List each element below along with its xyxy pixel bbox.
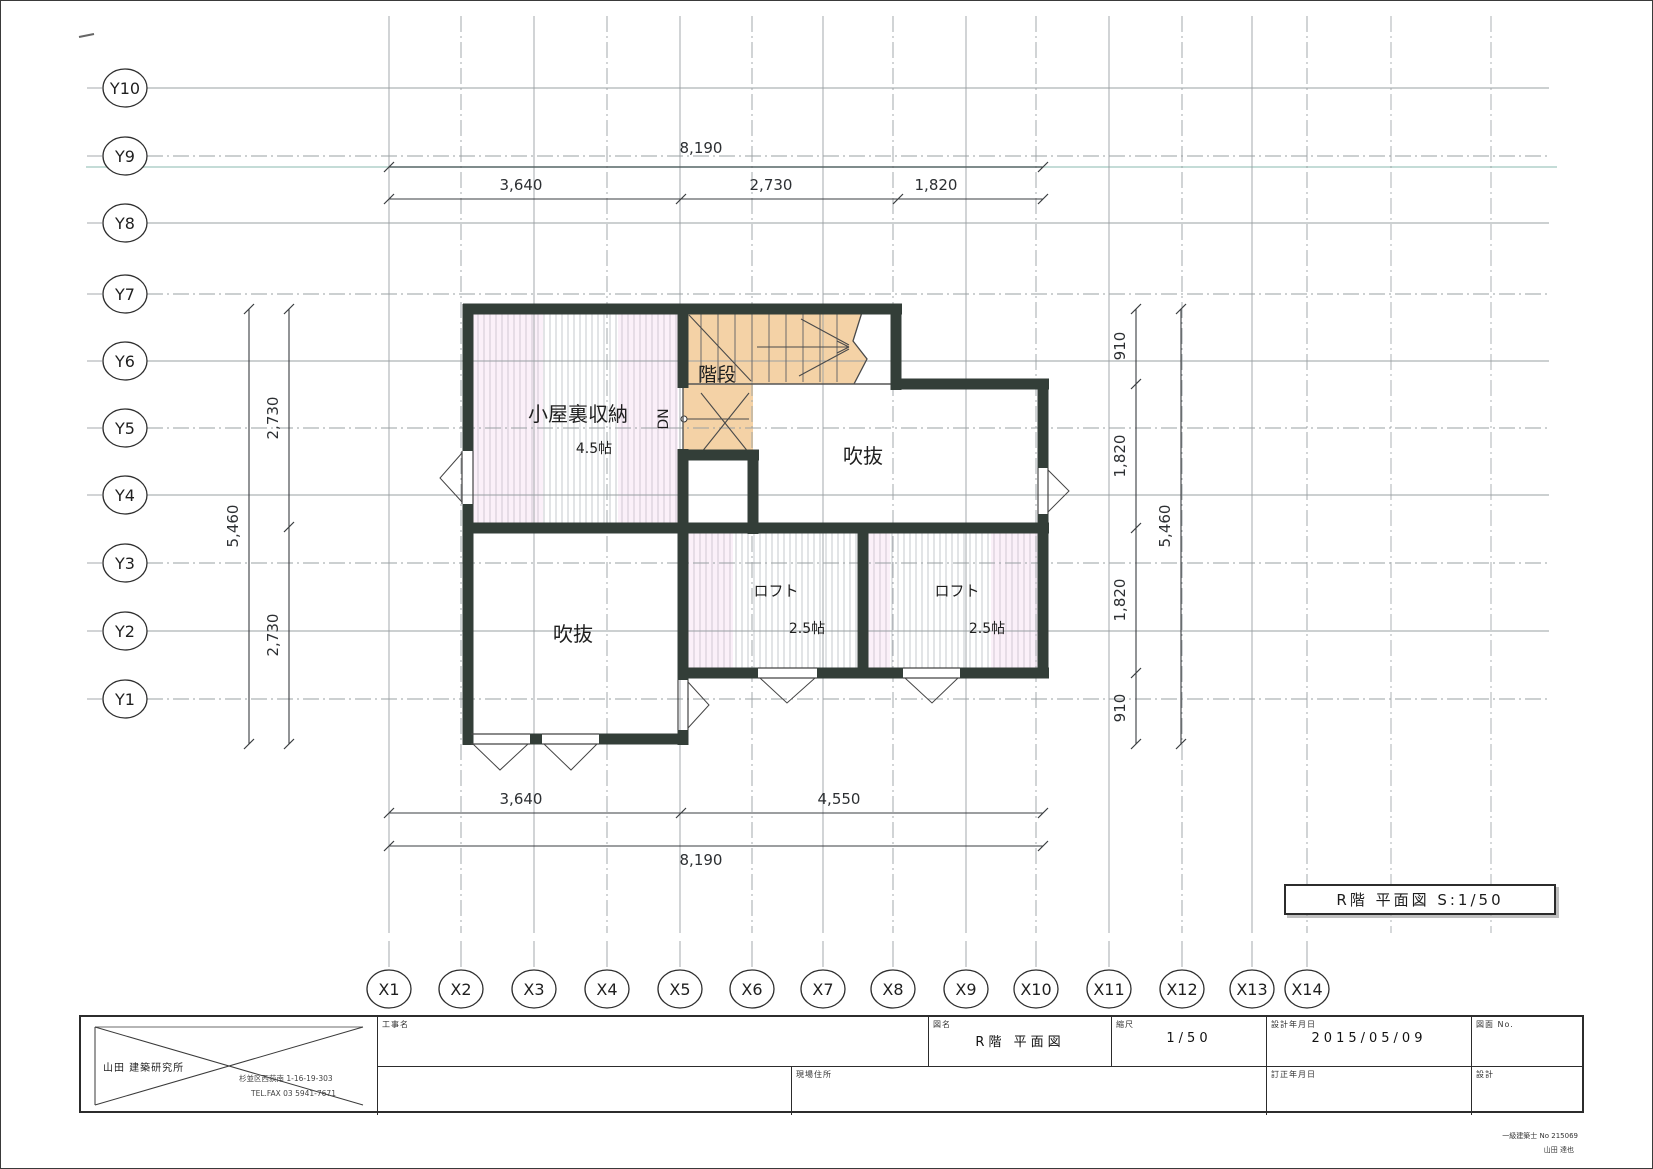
room-label: 2.5帖 [969,621,1005,637]
floor-plan-drawing: 小屋裏収納4.5帖階段DN吹抜吹抜ロフト2.5帖ロフト2.5帖Y10Y9Y8Y7… [1,1,1653,1169]
company-logo-cell: 山田 建築研究所 杉並区西荻南 1-16-19-303 TEL.FAX 03 5… [81,1017,377,1115]
room-label: 2.5帖 [789,621,825,637]
scale-cell: 縮尺 1/50 [1111,1017,1266,1066]
grid-bubble-label-X5: X5 [669,980,690,999]
title-block: 山田 建築研究所 杉並区西荻南 1-16-19-303 TEL.FAX 03 5… [79,1015,1584,1113]
designer-label: 設計 [1476,1069,1494,1080]
project-name-cell: 工事名 [377,1017,928,1066]
grid-bubble-label-X1: X1 [378,980,399,999]
dimension-text: 2,730 [264,397,282,440]
site-address-cell: 現場住所 [791,1066,1266,1115]
design-date-label: 設計年月日 [1271,1019,1316,1030]
grid-bubble-label-X13: X13 [1236,980,1267,999]
dimension-text: 1,820 [1111,435,1129,478]
grid-bubble-label-Y2: Y2 [114,622,135,641]
window-casement-icon [688,682,709,728]
grid-bubble-label-X7: X7 [812,980,833,999]
grid-bubble-label-Y3: Y3 [114,554,135,573]
drawing-name-cell: 図名 R階 平面図 [928,1017,1111,1066]
room-label: ロフト [934,582,979,600]
scan-pink-tint [991,533,1038,668]
window-casement-icon [544,744,597,770]
grid-bubble-label-X6: X6 [741,980,762,999]
design-date-value: 2015/05/09 [1267,1031,1471,1046]
drawing-name-value: R階 平面図 [929,1031,1111,1050]
grid-bubble-label-Y1: Y1 [114,690,135,709]
dimension-text: 8,190 [680,851,723,869]
grid-bubble-label-X10: X10 [1020,980,1051,999]
dimension-text: 910 [1111,332,1129,361]
dimension-text: 2,730 [264,614,282,657]
company-address: 杉並区西荻南 1-16-19-303 [239,1073,333,1084]
room-label: 吹抜 [843,444,883,468]
dimension-text: 3,640 [500,790,543,808]
dimension-text: 3,640 [500,176,543,194]
figure-title-box: R階 平面図 S:1/50 [1284,884,1556,915]
design-date-cell: 設計年月日 2015/05/09 [1266,1017,1471,1066]
grid-bubble-label-X14: X14 [1291,980,1322,999]
company-name: 山田 建築研究所 [103,1059,184,1074]
site-address-label: 現場住所 [796,1069,832,1080]
room-label: 4.5帖 [576,441,612,457]
grid-bubble-label-X12: X12 [1166,980,1197,999]
company-phone: TEL.FAX 03 5941-7671 [251,1089,336,1098]
dimension-text: 1,820 [1111,579,1129,622]
grid-bubble-label-Y6: Y6 [114,352,135,371]
grid-bubble-label-X3: X3 [523,980,544,999]
dimension-text: 5,460 [224,505,242,548]
dimension-text: 2,730 [750,176,793,194]
scan-pink-tint [688,533,733,668]
dimension-text: 910 [1111,694,1129,723]
dimension-text: 5,460 [1156,505,1174,548]
revision-date-cell: 訂正年月日 [1266,1066,1471,1115]
window-casement-icon [1048,470,1069,512]
designer-cell: 設計 一級建築士 No 215069 山田 達也 [1471,1066,1584,1115]
scale-label: 縮尺 [1116,1019,1134,1030]
scan-artifact [79,34,94,37]
dimension-text: 8,190 [680,139,723,157]
grid-bubble-label-X4: X4 [596,980,617,999]
grid-bubble-label-X9: X9 [955,980,976,999]
scale-value: 1/50 [1112,1031,1266,1046]
grid-bubble-label-X2: X2 [450,980,471,999]
room-label: 吹抜 [553,622,593,646]
figure-title-text: R階 平面図 S:1/50 [1336,889,1503,910]
project-name-label: 工事名 [382,1019,409,1030]
scan-pink-tint [868,533,890,668]
grid-bubble-label-Y7: Y7 [114,285,135,304]
stair-dn-pivot [681,416,687,422]
dimension-text: 4,550 [818,790,861,808]
grid-bubble-label-X11: X11 [1093,980,1124,999]
room-label: DN [656,408,672,429]
scanned-floor-plan-page: 小屋裏収納4.5帖階段DN吹抜吹抜ロフト2.5帖ロフト2.5帖Y10Y9Y8Y7… [0,0,1653,1169]
designer-name: 山田 達也 [1544,1145,1574,1155]
grid-bubble-label-Y4: Y4 [114,486,135,505]
window-casement-icon [473,744,528,770]
room-label: 階段 [698,364,736,386]
room-label: 小屋裏収納 [528,402,628,426]
drawing-number-label: 図面 No. [1476,1019,1514,1030]
dimension-text: 1,820 [915,176,958,194]
drawing-number-cell: 図面 No. [1471,1017,1584,1066]
grid-bubble-label-Y5: Y5 [114,419,135,438]
grid-bubble-label-Y8: Y8 [114,214,135,233]
designer-license: 一級建築士 No 215069 [1502,1131,1578,1141]
revision-date-label: 訂正年月日 [1271,1069,1316,1080]
grid-bubble-label-X8: X8 [882,980,903,999]
grid-bubble-label-Y9: Y9 [114,147,135,166]
blank-cell [377,1066,791,1115]
grid-bubble-label-Y10: Y10 [109,79,140,98]
room-label: ロフト [753,582,798,600]
drawing-name-label: 図名 [933,1019,951,1030]
